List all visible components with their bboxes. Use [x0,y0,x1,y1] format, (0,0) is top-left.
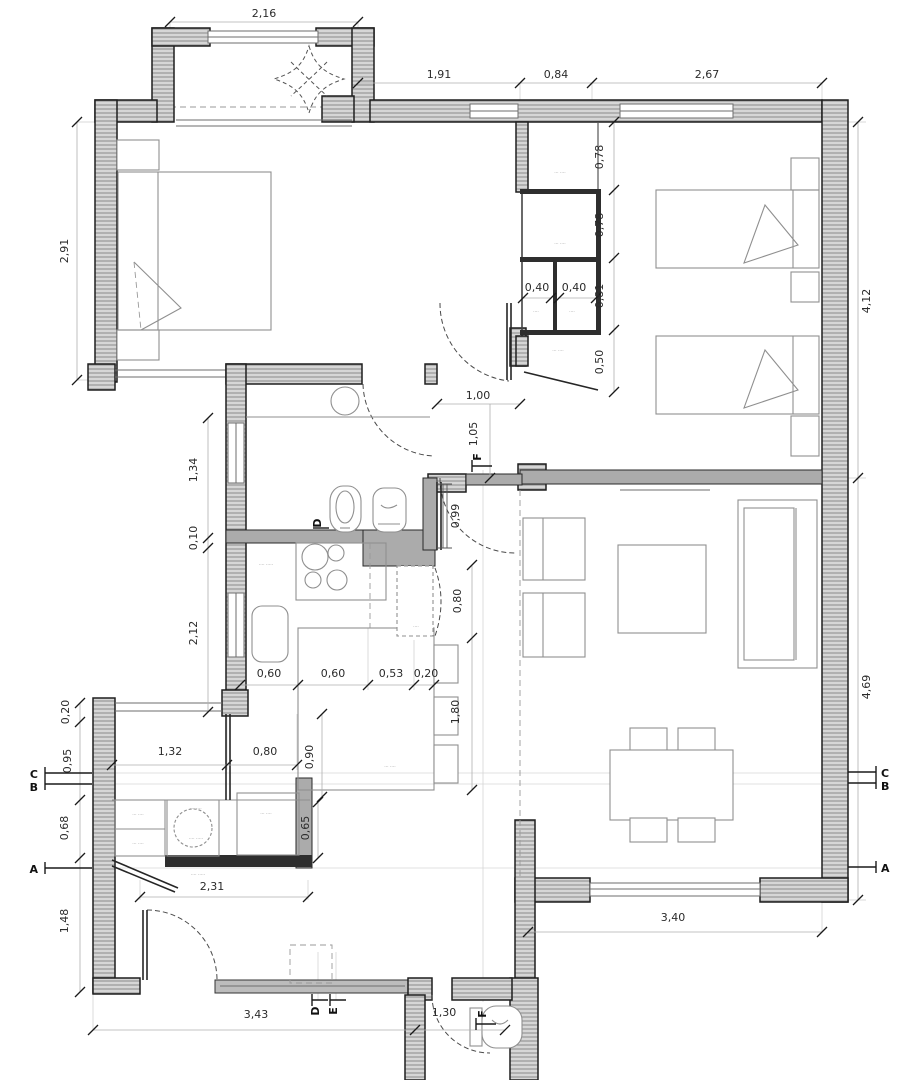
kitchen-island [298,628,434,790]
wall-note: ···· ····· [259,563,273,568]
dim-left-f: 0,95 [61,749,74,774]
fridge-label: ···· [413,625,419,630]
closet-label: ··· ···· [554,242,565,247]
dim-hall-c: 0,99 [449,504,462,529]
island-label: ··· ···· [384,765,395,770]
marker-d-bottom: D [309,1006,322,1015]
kitchen-west-window-2 [228,593,244,657]
dim-bot-a: 3,40 [661,911,686,924]
hall-living-wall [466,474,522,485]
bedroom2-living-wall [520,470,822,484]
dim-kit-a: 0,80 [451,589,464,614]
dim-hall-b: 1,05 [467,422,480,447]
single-bed-2 [656,336,819,414]
closet-divider-mid [553,262,557,332]
closet-divider-1 [520,189,600,194]
armchair [523,593,585,657]
laundry-label: ··· ···· [190,807,201,812]
dim-left-h: 1,48 [58,909,71,934]
closet-label: ···· [569,310,575,315]
dim-left-a: 2,91 [58,239,71,264]
dim-kit-f: 1,80 [449,700,462,725]
kitchen-sink [252,606,288,662]
laundry-note: ···· ····· [191,873,205,878]
dim-laun-a: 1,32 [158,745,183,758]
bathroom-door-arc [363,384,434,456]
dim-closet-d: 0,40 [562,281,587,294]
marker-b-right: B [881,780,889,793]
stool [434,745,458,783]
bathroom-east-wall [423,478,437,550]
closet-label: ··· ···· [552,349,563,354]
dim-closet-e: 0,81 [593,284,606,309]
armchair [523,518,585,580]
dim-left-d: 2,12 [187,621,200,646]
window-top-small [470,104,518,118]
bathroom-door-pier [425,364,437,384]
water-heater [237,793,299,855]
dim-closet-c: 0,40 [525,281,550,294]
dim-left-e: 0,20 [59,700,72,725]
dimension-labels: 2,16 1,91 0,84 2,67 2,91 1,34 0,10 2,12 … [58,7,873,1021]
closet5-west-pier [516,336,528,366]
left-wall-lower [93,698,115,993]
sofa [738,500,817,668]
bay-wall-top-left [152,28,210,46]
entrance-door-arc [147,910,217,980]
closet-label: ··· ···· [554,171,565,176]
window-top-large [620,104,733,118]
dining-table [610,750,733,820]
chair [678,728,715,752]
toilet [373,488,406,532]
living-south-window [590,883,760,896]
closet-divider-3 [520,330,600,335]
dim-right-b: 4,69 [860,675,873,700]
dim-bot-b: 3,43 [244,1008,269,1021]
laundry-pier [222,690,248,716]
dining-set [610,728,733,842]
marker-b-left: B [30,781,38,794]
closet-label: ···· [533,310,539,315]
right-wall [822,100,848,902]
dim-right-a: 4,12 [860,289,873,314]
dim-laun-c: 0,90 [303,745,316,770]
side-table [791,416,819,456]
laundry-label: ··· ···· [260,812,271,817]
dim-left-c: 0,10 [187,526,200,551]
wc-north-wall [452,978,512,1000]
dim-closet-b: 0,78 [593,213,606,238]
left-wall-upper [95,100,117,382]
marker-f-hall: F [471,453,484,461]
kitchen-west-window-1 [228,423,244,483]
bottom-hall-wall [215,980,410,993]
floor-plan-drawing: 2,16 1,91 0,84 2,67 2,91 1,34 0,10 2,12 … [0,0,922,1080]
marker-c-right: C [881,767,889,780]
dim-bot-c: 1,30 [432,1006,457,1019]
laundry-label: ···· ····· [189,837,203,842]
nightstand [791,272,819,302]
bedroom-door-leaf [507,303,511,380]
single-bed-1 [656,190,819,268]
closet-divider-2 [520,257,600,262]
dim-kit-e: 0,20 [414,667,439,680]
dim-closet-f: 0,50 [593,350,606,375]
chair [630,818,667,842]
dim-top-a: 1,91 [427,68,452,81]
exterior-walls [88,28,848,1080]
chair [678,818,715,842]
dim-top-b: 0,84 [544,68,569,81]
closet-west-strip [516,122,528,192]
marker-a-left: A [29,863,38,876]
laundry-counter-band [165,855,312,867]
marker-d-bathroom: D [311,518,324,527]
bed-fold [744,205,798,263]
bedroom-door-arc [440,303,509,381]
dim-laun-d: 0,65 [299,816,312,841]
dim-laun-b: 0,80 [253,745,278,758]
living-south-wall-right [760,878,848,902]
laundry-label: ··· ···· [132,813,143,818]
double-bed [118,172,271,330]
top-wall [370,100,822,122]
bay-corner-block [322,96,354,122]
nightstand [117,330,159,360]
dim-kit-d: 0,53 [379,667,404,680]
marker-f-bottom: F [476,1010,489,1018]
entrance-door-leaf [143,910,147,980]
floor-plan-sheet: 2,16 1,91 0,84 2,67 2,91 1,34 0,10 2,12 … [0,0,922,1080]
washbasin [331,387,359,415]
bidet [330,486,361,532]
furniture [112,46,819,1048]
dim-left-g: 0,68 [58,816,71,841]
laundry-partition [226,714,230,800]
bedroom1-sw-corner [88,364,115,390]
closet-east-wall [596,189,601,335]
marker-c-left: C [30,768,38,781]
section-markers: C B A C B A D E F F D [29,453,890,1030]
bed-fold [744,350,798,408]
entry-step [290,945,332,983]
dim-hall-a: 1,00 [466,389,491,402]
dim-kit-c: 0,60 [321,667,346,680]
chair [630,728,667,752]
laundry-cabinet [115,800,165,856]
marker-a-right: A [881,862,890,875]
bottom-wall-left [93,978,140,994]
marker-e-bottom: E [327,1007,340,1015]
nightstand [791,158,819,190]
dim-top-c: 2,67 [695,68,720,81]
dim-closet-a: 0,78 [593,145,606,170]
nightstand [117,140,159,170]
dim-kit-b: 0,60 [257,667,282,680]
laundry-label: ··· ···· [132,842,143,847]
closet5-diagonal [524,372,598,390]
dim-laun-e: 2,31 [200,880,225,893]
coffee-table [618,545,706,633]
wc-west-wall [405,995,425,1080]
dim-left-b: 1,34 [187,458,200,483]
dim-bay-width: 2,16 [252,7,277,20]
fridge [397,566,441,636]
